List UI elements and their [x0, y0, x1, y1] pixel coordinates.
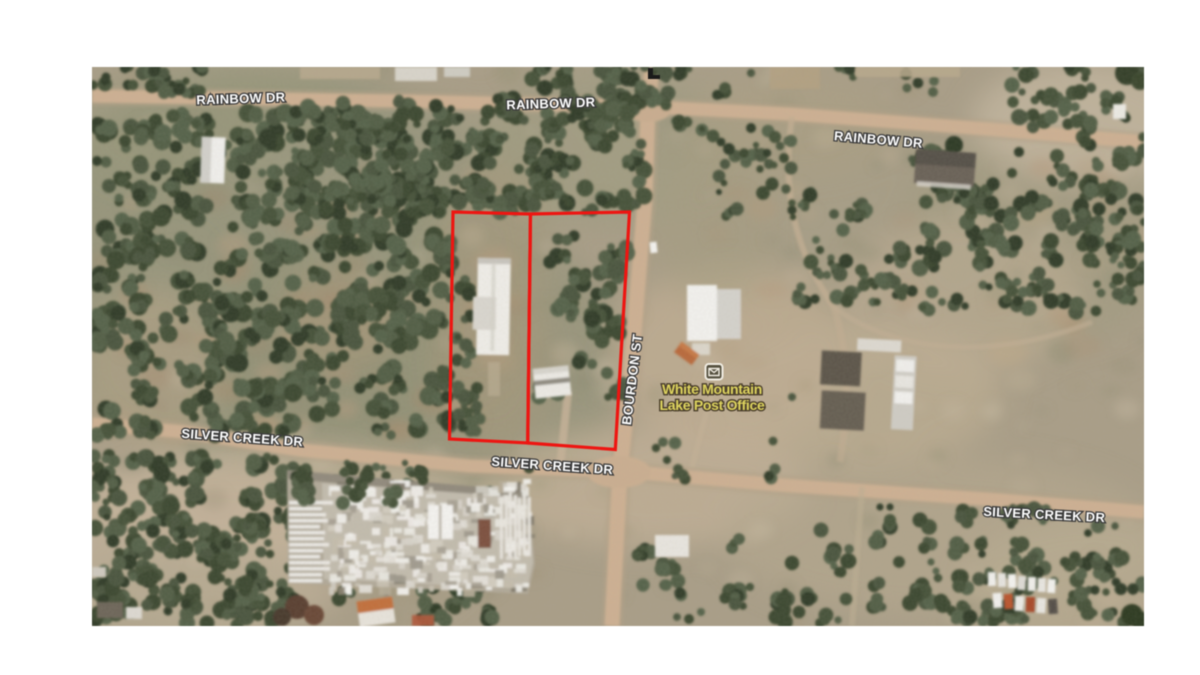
svg-text:Lake Post Office: Lake Post Office [660, 397, 765, 413]
svg-text:RAINBOW DR: RAINBOW DR [506, 94, 596, 112]
svg-text:White Mountain: White Mountain [662, 381, 762, 397]
svg-text:RAINBOW DR: RAINBOW DR [196, 89, 286, 107]
